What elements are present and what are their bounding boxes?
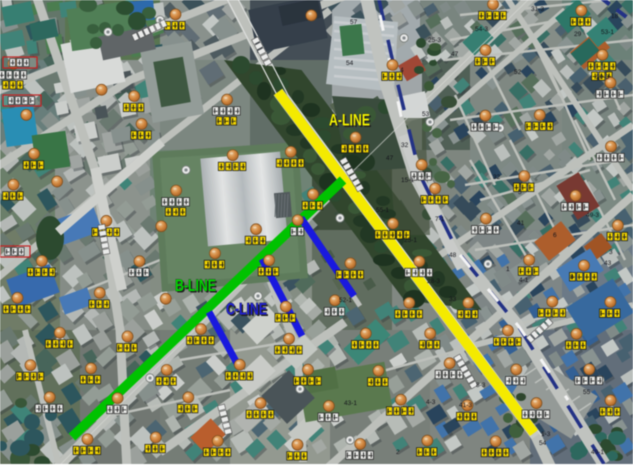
svg-text:8: 8 (570, 274, 574, 281)
svg-text:4-3: 4-3 (426, 399, 436, 406)
svg-text:1: 1 (506, 266, 510, 273)
svg-text:2: 2 (396, 449, 400, 456)
svg-text:28-3: 28-3 (427, 278, 440, 285)
svg-text:55-1: 55-1 (376, 207, 389, 214)
svg-text:31-3: 31-3 (531, 6, 544, 13)
svg-text:53-1: 53-1 (601, 29, 614, 36)
svg-text:20-3: 20-3 (596, 74, 609, 81)
svg-text:47: 47 (451, 51, 459, 58)
svg-text:25-1: 25-1 (404, 237, 417, 244)
svg-text:29: 29 (574, 31, 582, 38)
svg-text:4-1: 4-1 (519, 277, 529, 284)
svg-text:55: 55 (583, 389, 591, 396)
svg-text:54-3: 54-3 (475, 26, 488, 33)
svg-text:18: 18 (611, 13, 619, 20)
svg-text:43: 43 (604, 260, 612, 267)
svg-text:49-3: 49-3 (586, 212, 599, 219)
svg-text:47: 47 (386, 155, 394, 162)
svg-text:52: 52 (514, 69, 522, 76)
svg-text:57: 57 (350, 19, 358, 26)
svg-text:32: 32 (401, 142, 409, 149)
svg-text:A-LINE: A-LINE (329, 111, 370, 130)
svg-text:1-3: 1-3 (541, 431, 551, 438)
svg-text:43-1: 43-1 (344, 400, 357, 407)
svg-text:5: 5 (518, 189, 522, 196)
svg-text:7-1: 7-1 (435, 216, 445, 223)
svg-text:C-LINE: C-LINE (226, 300, 267, 319)
svg-text:32: 32 (493, 174, 501, 181)
svg-text:41: 41 (517, 220, 525, 227)
svg-text:52-1: 52-1 (339, 297, 352, 304)
svg-text:54: 54 (539, 440, 547, 447)
svg-text:41-3: 41-3 (459, 402, 472, 409)
svg-text:53: 53 (422, 111, 430, 118)
svg-text:3: 3 (609, 249, 613, 256)
svg-text:4: 4 (400, 67, 404, 74)
svg-text:48: 48 (449, 252, 457, 259)
svg-text:B-LINE: B-LINE (175, 276, 216, 295)
svg-text:8-3: 8-3 (476, 382, 486, 389)
svg-text:6: 6 (553, 232, 557, 239)
svg-text:49-1: 49-1 (591, 449, 604, 456)
svg-text:54: 54 (346, 60, 354, 67)
svg-text:25-3: 25-3 (428, 37, 441, 44)
svg-text:33: 33 (449, 296, 457, 303)
svg-text:15-1: 15-1 (401, 177, 414, 184)
